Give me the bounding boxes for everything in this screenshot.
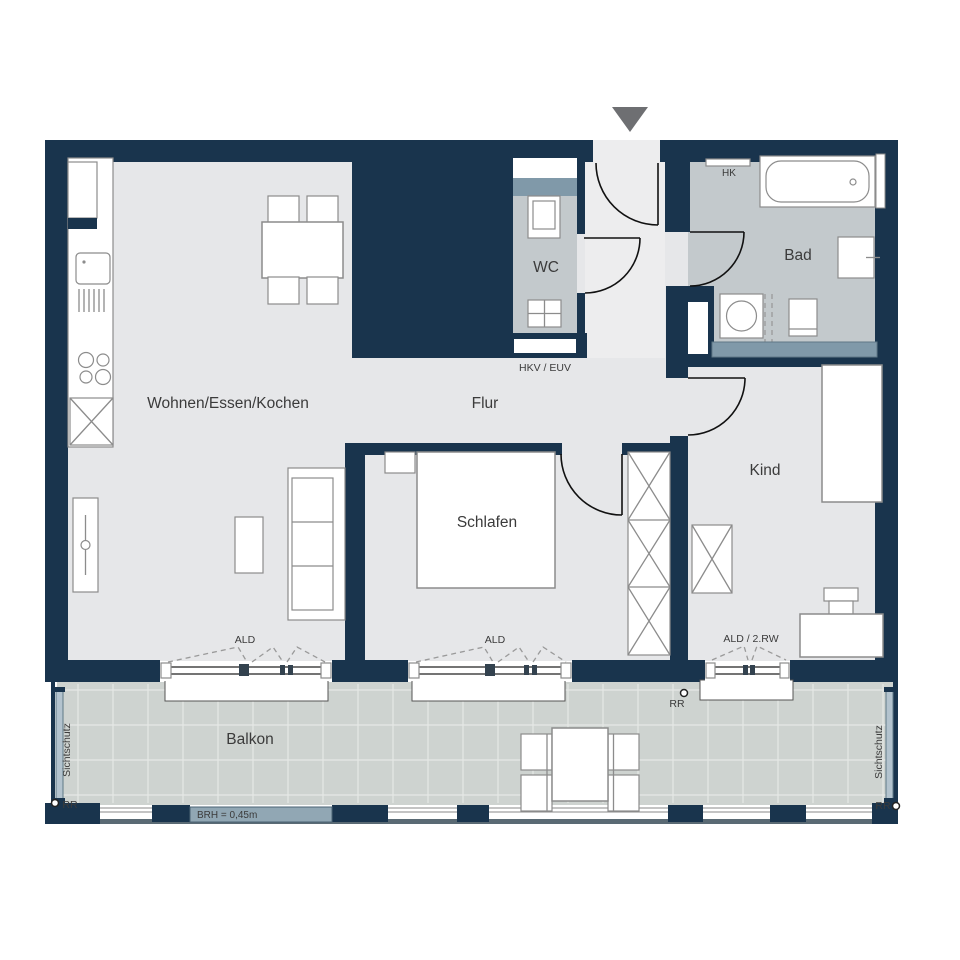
- desk-chair-seat: [829, 601, 853, 615]
- bedroom-left-wall: [345, 443, 365, 662]
- dining-chair: [307, 196, 338, 223]
- privacy-screen-right-cap-top: [884, 687, 895, 692]
- dining-chair: [268, 277, 299, 304]
- railing-post: [457, 805, 489, 822]
- hkv-cabinet-niche: [514, 339, 576, 353]
- privacy-label-right: Sichtschutz: [873, 725, 885, 779]
- balcony-chair: [608, 775, 639, 811]
- rain-pipe-icon: [681, 690, 688, 697]
- shaft-wall-left: [666, 302, 688, 378]
- wall-bottom-seg4: [790, 660, 898, 682]
- dining-chair: [268, 196, 299, 223]
- room-label-hall: Flur: [472, 395, 499, 412]
- wc-right-wall-upper: [577, 158, 585, 234]
- living-window-sill: [165, 680, 328, 701]
- railing-post: [152, 805, 190, 822]
- balcony-furniture: [521, 728, 639, 811]
- kitchen-sink: [76, 253, 110, 284]
- burner: [79, 353, 94, 368]
- privacy-screen-right: [886, 690, 893, 800]
- floorplan-drawing: Wohnen/Essen/Kochen Flur WC Bad Schlafen…: [0, 0, 960, 960]
- room-label-balcony: Balkon: [226, 731, 273, 748]
- tv-dot: [81, 541, 90, 550]
- bathtub-drain: [850, 179, 856, 185]
- shaft-wall-top: [666, 286, 714, 302]
- vent-label-bedroom: ALD: [485, 634, 506, 646]
- window-jamb: [409, 663, 419, 678]
- installation-shaft: [688, 302, 708, 354]
- radiator: [706, 159, 750, 166]
- rain-pipe-label-right: RR: [875, 800, 891, 812]
- washing-machine: [720, 294, 763, 338]
- fridge: [68, 162, 97, 218]
- railing-post: [770, 805, 806, 822]
- window-jamb: [321, 663, 331, 678]
- wall-left: [45, 140, 68, 682]
- window-jamb: [561, 663, 571, 678]
- rain-pipe-icon: [52, 800, 59, 807]
- room-label-bath: Bad: [784, 247, 812, 264]
- entrance-arrow-icon: [612, 107, 648, 132]
- radiator-label: HK: [722, 168, 736, 179]
- child-bed: [822, 365, 882, 502]
- parapet-height-label: BRH = 0,45m: [197, 810, 257, 821]
- child-wardrobe: [692, 525, 732, 593]
- burner: [80, 371, 92, 383]
- dining-chair: [307, 277, 338, 304]
- privacy-screen-left-cap-top: [54, 687, 65, 692]
- sofa: [288, 468, 345, 620]
- balcony-chair: [608, 734, 639, 770]
- floorplan-canvas: Wohnen/Essen/Kochen Flur WC Bad Schlafen…: [0, 0, 960, 960]
- coffee-table: [235, 517, 263, 573]
- wall-bottom-seg2: [332, 660, 408, 682]
- dining-table: [262, 222, 343, 278]
- burner: [96, 370, 111, 385]
- window-stile: [524, 665, 529, 675]
- railing-post: [332, 805, 388, 822]
- privacy-label-left: Sichtschutz: [61, 723, 73, 777]
- child-left-wall: [670, 436, 688, 662]
- window-stile: [532, 665, 537, 675]
- railing-post: [668, 805, 703, 822]
- washer-drum: [727, 301, 757, 331]
- wc-washbasin-bowl: [533, 201, 555, 229]
- window-stile: [743, 665, 748, 675]
- hkv-label: HKV / EUV: [519, 362, 571, 374]
- burner: [97, 354, 109, 366]
- wc-shelf: [513, 178, 577, 196]
- balcony-table: [552, 728, 608, 801]
- bath-side-window: [876, 154, 885, 208]
- kitchen-wall-stub: [68, 218, 97, 229]
- balcony-area: [45, 682, 898, 824]
- window-handle: [239, 664, 249, 676]
- window-jamb: [706, 663, 715, 678]
- bedroom-window-sill: [412, 680, 565, 701]
- nightstand: [385, 452, 415, 473]
- rain-pipe-label-left: RR: [62, 799, 78, 811]
- desk-chair-back: [824, 588, 858, 601]
- sofa-cushions: [292, 478, 333, 610]
- vent-label-child: ALD / 2.RW: [723, 633, 778, 645]
- sink-drain: [82, 260, 85, 263]
- kitchen-fixtures: [68, 158, 113, 447]
- desk: [800, 614, 883, 657]
- window-jamb: [161, 663, 171, 678]
- window-stile: [288, 665, 293, 675]
- bathtub: [760, 156, 875, 207]
- stair-core-block: [352, 140, 513, 358]
- wall-bottom-seg3: [572, 660, 705, 682]
- vent-label-living: ALD: [235, 634, 256, 646]
- bath-washbasin: [838, 237, 880, 278]
- balcony-left-edge: [51, 682, 55, 805]
- window-stile: [280, 665, 285, 675]
- wc-toilet: [528, 300, 561, 327]
- balcony-railing: [45, 803, 898, 824]
- bath-toilet: [789, 299, 817, 336]
- rain-pipe-label-top: RR: [669, 698, 685, 710]
- room-label-living: Wohnen/Essen/Kochen: [147, 395, 309, 412]
- child-window-sill: [700, 680, 793, 700]
- wc-niche: [513, 158, 577, 178]
- toilet-box: [789, 299, 817, 336]
- tv-sideboard: [73, 498, 98, 592]
- window-stile: [750, 665, 755, 675]
- bath-counter: [712, 342, 877, 357]
- bath-left-wall: [665, 162, 690, 232]
- window-handle: [485, 664, 495, 676]
- room-label-bedroom: Schlafen: [457, 514, 517, 531]
- wc-right-wall-lower: [577, 293, 585, 333]
- wall-bottom-seg1: [45, 660, 160, 682]
- rain-pipe-icon: [893, 803, 900, 810]
- dishwasher: [70, 398, 113, 445]
- room-label-child: Kind: [749, 462, 780, 479]
- window-jamb: [780, 663, 789, 678]
- room-label-wc: WC: [533, 259, 559, 276]
- balcony-right-edge: [893, 682, 898, 805]
- bedroom-wardrobe: [628, 452, 670, 655]
